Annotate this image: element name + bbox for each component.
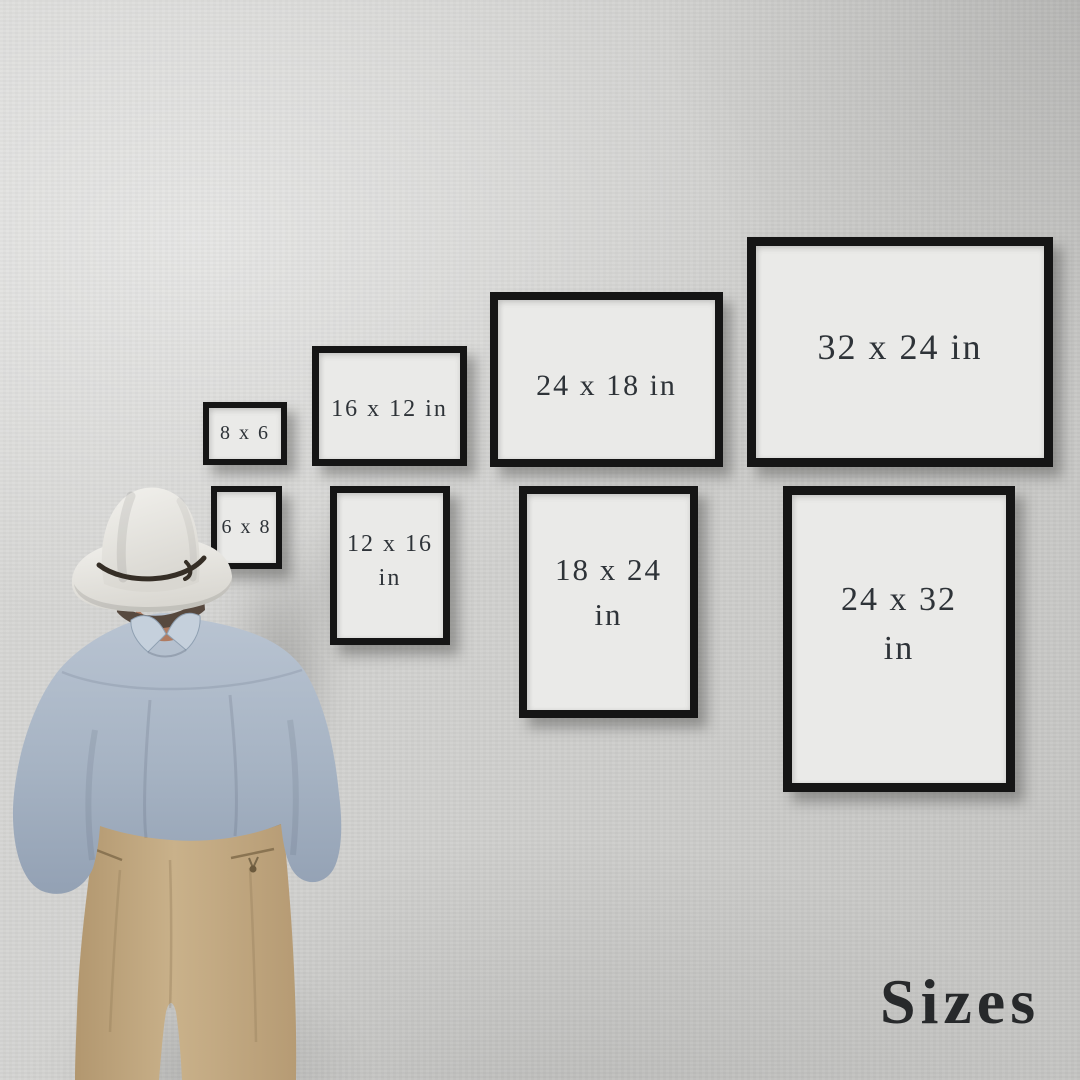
trousers (75, 820, 296, 1080)
pocket-button (250, 866, 257, 873)
scene: 8 x 6 16 x 12 in 24 x 18 in 32 x 24 in 6… (0, 0, 1080, 1080)
man-figure (0, 0, 1080, 1080)
sizes-watermark: Sizes (880, 970, 1040, 1034)
fedora-hat (72, 487, 232, 612)
